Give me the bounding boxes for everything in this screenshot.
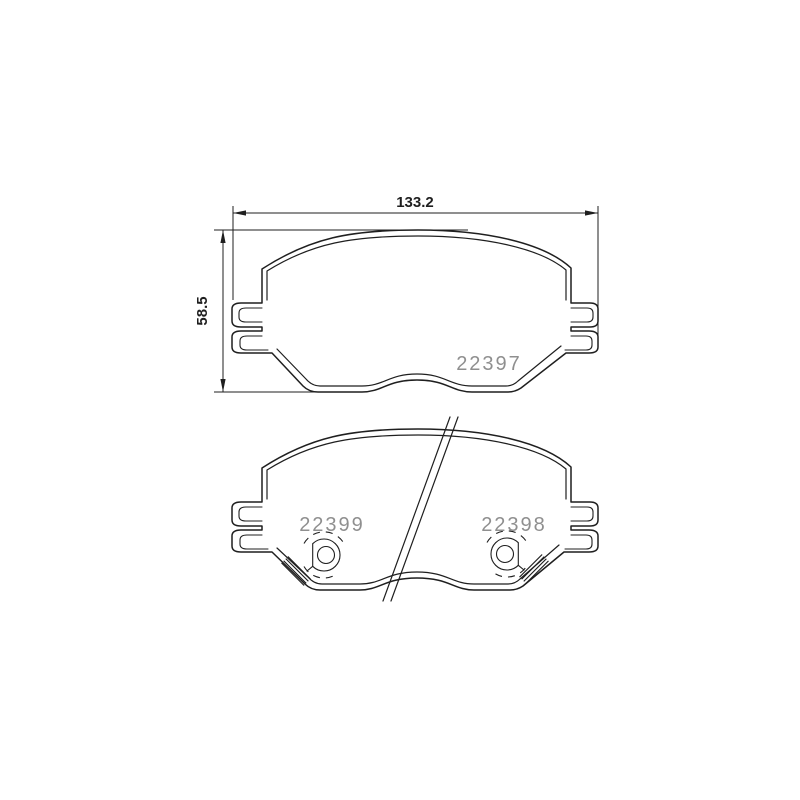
bottom-view-arch-inner-line <box>267 435 566 499</box>
part-number-bottom-left: 22399 <box>299 514 365 536</box>
dimension-height: 58.5 <box>194 230 226 392</box>
part-number-top: 22397 <box>456 353 522 375</box>
top-view-ear-details <box>239 308 593 350</box>
top-view-arch-inner-line <box>267 236 566 300</box>
dimension-width-label: 133.2 <box>396 194 434 211</box>
brake-pad-drawing-canvas: 133.2 58.5 22397 <box>0 0 800 800</box>
dimension-height-label: 58.5 <box>194 296 211 325</box>
bottom-view: 22399 22398 <box>232 417 598 601</box>
dimension-extension-lines <box>214 206 598 392</box>
wear-indicator-right <box>487 531 527 577</box>
dimension-width: 133.2 <box>233 194 598 216</box>
part-number-bottom-right: 22398 <box>481 514 547 536</box>
top-view: 133.2 58.5 22397 <box>194 194 598 392</box>
break-line <box>383 417 458 601</box>
wear-indicator-left <box>304 532 344 578</box>
top-view-pad-outline <box>232 230 598 392</box>
brake-pad-technical-drawing: 133.2 58.5 22397 <box>0 0 800 800</box>
chamfer-hatch-left <box>282 557 311 586</box>
